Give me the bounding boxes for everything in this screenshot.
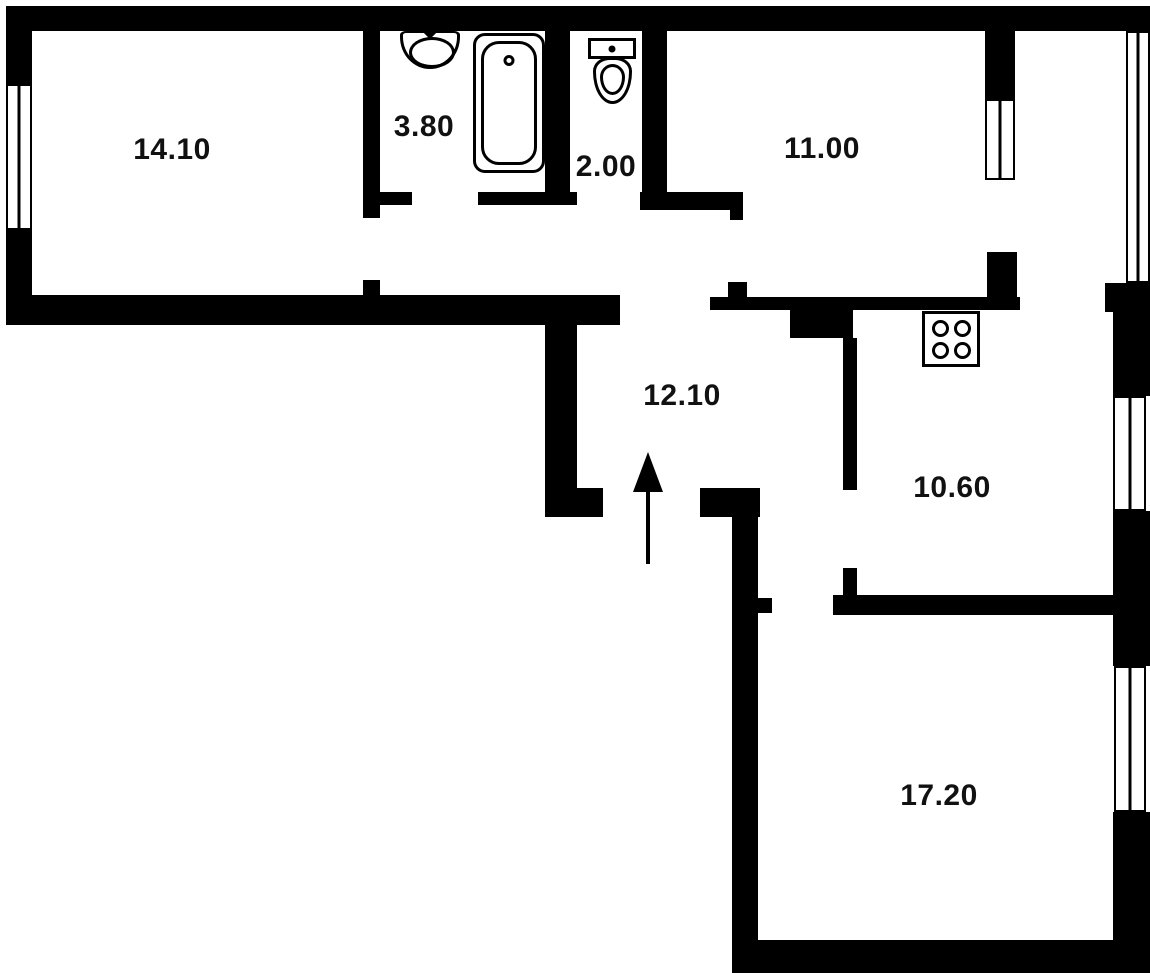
- toilet-bowl-inner: [600, 64, 625, 95]
- window-mullion: [1137, 32, 1140, 282]
- wall-bathroom-left: [363, 31, 380, 218]
- wall-kitchen-top: [710, 297, 1020, 310]
- bathtub-icon: [473, 33, 545, 173]
- wall-kitchen-left: [843, 338, 857, 490]
- sink-bowl: [409, 37, 455, 68]
- room-label-hallway: 12.10: [643, 379, 721, 413]
- wall-corridor-top-right: [640, 192, 743, 210]
- wall-hallway-left: [545, 325, 577, 488]
- room-label-1410: 14.10: [133, 133, 211, 167]
- wall-room1720-left: [732, 517, 758, 973]
- wall-kitchen-corner-block: [790, 310, 853, 338]
- room-label-wc: 2.00: [576, 150, 636, 184]
- wall-bathroom-bottom: [478, 192, 547, 205]
- wall-right-kitchen-upper: [1113, 312, 1150, 396]
- wall-stub-room1410-door: [363, 280, 380, 295]
- wall-wc-right: [642, 31, 667, 195]
- wall-kitchen-bottom: [833, 595, 1118, 615]
- entrance-arrow-icon: [633, 452, 663, 564]
- room-label-1720: 17.20: [900, 779, 978, 813]
- window-room1100-shaft: [985, 99, 1015, 180]
- wall-right-jog: [1105, 283, 1150, 312]
- window-mullion: [999, 100, 1002, 179]
- entrance-arrow-shaft: [646, 492, 650, 564]
- window-mullion: [1129, 667, 1132, 811]
- wall-room1100-shaft-divider: [985, 31, 1015, 99]
- toilet-tank: [588, 38, 636, 59]
- wall-bathroom-door-jamb-left: [380, 192, 412, 205]
- wall-right-kitchen-lower: [1113, 511, 1150, 666]
- stove-burner: [954, 342, 971, 359]
- wall-top-exterior: [6, 6, 1150, 31]
- wall-room1720-door-jamb: [758, 598, 772, 613]
- stove-burner: [932, 342, 949, 359]
- stove-icon: [922, 311, 980, 367]
- room-label-kitchen: 10.60: [913, 471, 991, 505]
- wall-bathroom-wc-divider: [545, 31, 570, 192]
- stove-burner: [932, 320, 949, 337]
- wall-kitchen-shaft-block: [987, 252, 1017, 297]
- stove-burner: [954, 320, 971, 337]
- wall-entrance-jamb-left: [545, 488, 603, 517]
- entrance-arrow-head: [633, 452, 663, 492]
- window-mullion: [18, 85, 21, 229]
- room-label-bathroom: 3.80: [394, 110, 454, 144]
- floor-plan: 14.10 3.80 2.00 11.00 12.10 10.60 17.20: [0, 0, 1150, 973]
- wall-entrance-jamb-right: [700, 488, 760, 517]
- window-room1410-left: [6, 84, 32, 230]
- bathtub-drain: [504, 55, 515, 66]
- wall-wc-door-jamb-left: [545, 192, 577, 205]
- wall-left-exterior-upper: [6, 6, 32, 86]
- window-room1720-right: [1114, 666, 1146, 812]
- wall-kitchen-door-jamb: [843, 568, 857, 595]
- wall-room1100-door-jamb-bottom: [728, 282, 747, 297]
- window-mullion: [1128, 397, 1131, 510]
- window-right-upper: [1126, 31, 1150, 283]
- room-label-1100: 11.00: [784, 132, 860, 166]
- wall-room1100-door-jamb-top: [730, 210, 743, 220]
- wall-top-right-corner: [1125, 6, 1150, 31]
- wall-bottom-of-left-section: [6, 295, 620, 325]
- window-kitchen-right: [1113, 396, 1146, 511]
- sink-icon: [400, 31, 460, 69]
- toilet-icon: [593, 57, 632, 104]
- wall-room1720-bottom: [732, 940, 1150, 973]
- toilet-tank-button: [609, 45, 616, 52]
